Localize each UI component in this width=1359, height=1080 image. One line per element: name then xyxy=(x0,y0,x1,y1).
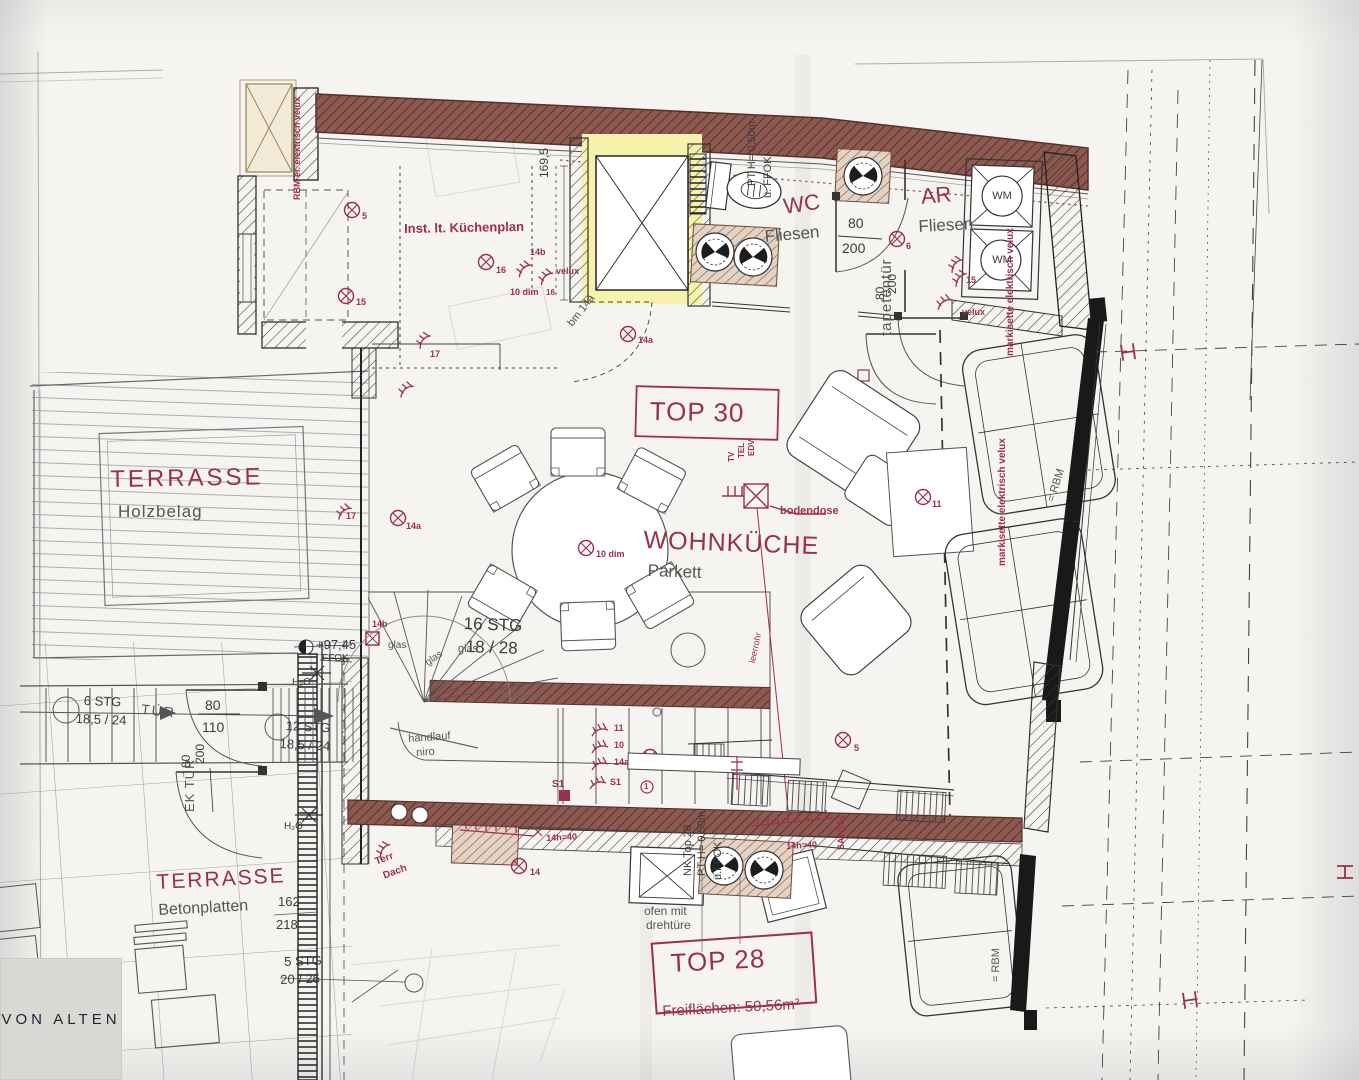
wc-floor: Fliesen xyxy=(764,223,820,245)
sym-10dim: 10 dim xyxy=(510,288,539,297)
sym-14b-glas: 14b xyxy=(372,620,388,629)
markise-note-a: markisette elektrisch velux xyxy=(1006,228,1016,356)
top28-label: TOP 28 xyxy=(670,945,766,976)
sym-14b: 14b xyxy=(530,248,546,257)
von-alten-logo: VON ALTEN xyxy=(0,958,122,1080)
roof-windows xyxy=(730,297,1118,1080)
sym-5-b: 5 xyxy=(854,744,859,753)
sym-15-b: 15 xyxy=(966,276,976,285)
door110-label: 110 xyxy=(202,720,224,734)
table-sym: 10 dim xyxy=(596,550,625,559)
door80-label: 80 xyxy=(205,698,221,712)
sym-16b: 16 xyxy=(546,289,555,297)
markise-note-b: markisette elektrisch velux xyxy=(998,438,1008,566)
bodendose-label: bodendose xyxy=(780,506,839,517)
h2o-a: H₂O xyxy=(292,678,311,688)
sym-16: 16 xyxy=(496,266,506,275)
h2o-b: H₂O xyxy=(284,822,303,832)
room-name: WOHNKÜCHE xyxy=(643,528,819,559)
tapetentuer-label: tapetentür xyxy=(879,258,894,336)
wc-ffok-note: ü. FFOK xyxy=(763,156,774,198)
handrail-height: h=100 cm xyxy=(502,690,542,700)
dim-162: 162 xyxy=(278,895,300,908)
shaft xyxy=(570,134,710,306)
level-marker: +97,45 xyxy=(316,638,356,651)
sym-17-a: 17 xyxy=(430,350,440,359)
sym-14: 14 xyxy=(530,868,540,877)
sym-11: 11 xyxy=(614,724,624,733)
dim-218: 218 xyxy=(276,918,298,931)
ofen-label-a: ofen mit xyxy=(644,905,687,917)
stair6-label: 6 STG xyxy=(84,694,122,708)
ofen-label-b: drehtüre xyxy=(646,919,691,931)
stair16-label: 16 STG xyxy=(463,615,522,634)
wc-parapet-note: PT H= 0,50m xyxy=(747,121,758,186)
glas-b: glas xyxy=(458,644,478,655)
sym-s1-b: S1 xyxy=(610,778,621,787)
edv-label: EDV xyxy=(748,440,756,456)
stair5-label: 5 STG xyxy=(284,954,322,968)
sym-s1-a: S1 xyxy=(552,780,564,790)
logo-text: VON ALTEN xyxy=(1,1011,120,1028)
terrace-top-floor: Holzbelag xyxy=(118,503,203,520)
velux-note-b: velux xyxy=(962,308,985,317)
handlauf-b: niro xyxy=(416,747,435,759)
sym-1: 1 xyxy=(644,783,648,791)
pt-note-b: PT H= 0,50m xyxy=(697,811,708,876)
sym-14a-b: 14a xyxy=(406,522,421,531)
tel-label: TEL xyxy=(738,443,746,458)
velux-note-a: velux xyxy=(556,267,579,276)
wc-door-w: 80 xyxy=(848,216,864,230)
sym-17-b: 17 xyxy=(346,512,356,521)
roof-grid xyxy=(1046,60,1359,1080)
ar-label: AR xyxy=(920,183,952,208)
stair12-label: 12 STG xyxy=(285,719,330,734)
sym-14a-door: 14a xyxy=(638,336,653,345)
nk-top28-note: NK Top 28 xyxy=(683,825,694,876)
tv-label: TV xyxy=(728,452,736,462)
level-ffok: FFOK xyxy=(322,654,349,664)
stair5-dim: 20 / 26 xyxy=(280,972,320,986)
closet-velux-note: RBM el. elektrisch velux xyxy=(293,97,302,200)
ek-tuer-label: EK TÜR xyxy=(183,759,196,812)
sym-6: 6 xyxy=(906,242,911,251)
dim-169: 169,5 xyxy=(538,148,550,178)
kitchen-note: Inst. lt. Küchenplan xyxy=(404,220,524,235)
sym-14h-a: 14h=40 xyxy=(546,832,577,843)
tuer-label: TÜR xyxy=(141,702,177,720)
sym-14a-a: 14a xyxy=(614,758,629,767)
sym-15-a: 15 xyxy=(356,298,366,307)
sym-14h-b: 14h=40 xyxy=(786,840,817,851)
room-floor: Parkett xyxy=(647,562,701,581)
wc-label: WC xyxy=(782,191,821,218)
stair12-dim: 18,5 / 24 xyxy=(279,737,330,753)
ar-floor: Fliesen xyxy=(918,215,974,235)
stair6-dim: 18,5 / 24 xyxy=(76,712,127,727)
wc-door-h: 200 xyxy=(842,241,865,255)
sym-11-b: 11 xyxy=(932,500,942,509)
rbm-note-b: = RBM xyxy=(991,948,1002,982)
sym-10: 10 xyxy=(614,741,624,750)
glas-a: glas xyxy=(388,641,406,651)
sat-tel-label: SAT/TEL xyxy=(837,813,846,850)
terrace-top-label: TERRASSE xyxy=(110,465,264,492)
ffok-note-b: ü.FFOK xyxy=(713,841,724,880)
floorplan-canvas: TERRASSE Holzbelag TERRASSE Betonplatten… xyxy=(0,0,1359,1080)
wm-label-a: WM xyxy=(988,191,1016,202)
top30-label: TOP 30 xyxy=(650,398,745,426)
sym-5-a: 5 xyxy=(362,212,367,221)
